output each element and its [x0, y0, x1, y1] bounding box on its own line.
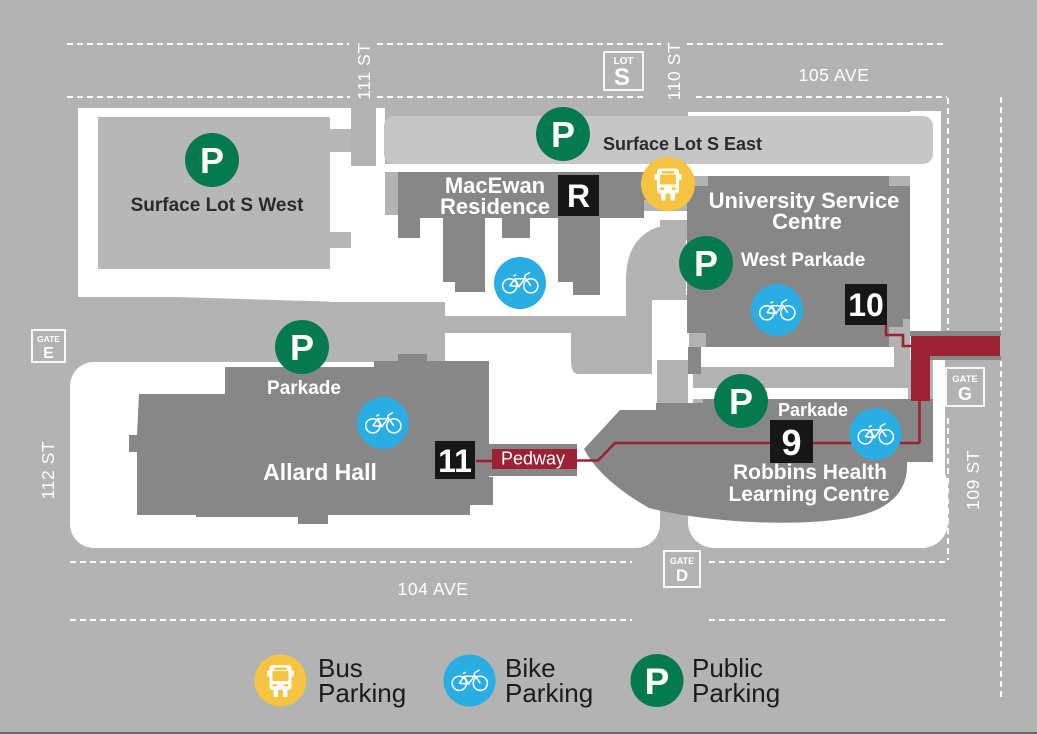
- svg-text:112 ST: 112 ST: [38, 441, 58, 500]
- svg-text:GATE: GATE: [37, 334, 60, 344]
- svg-text:Residence: Residence: [440, 194, 550, 219]
- svg-text:E: E: [43, 345, 54, 362]
- svg-text:111 ST: 111 ST: [354, 42, 374, 99]
- svg-text:Learning Centre: Learning Centre: [728, 483, 889, 506]
- svg-text:P: P: [551, 114, 575, 155]
- svg-text:West Parkade: West Parkade: [741, 250, 865, 271]
- svg-text:Parkade: Parkade: [267, 378, 341, 399]
- svg-text:Parking: Parking: [505, 678, 593, 708]
- svg-text:104 AVE: 104 AVE: [397, 579, 468, 599]
- svg-text:P: P: [645, 661, 670, 702]
- svg-text:110 ST: 110 ST: [664, 42, 684, 101]
- svg-text:Robbins Health: Robbins Health: [733, 461, 887, 484]
- svg-text:S: S: [614, 64, 630, 91]
- svg-text:P: P: [729, 381, 753, 422]
- svg-text:Parkade: Parkade: [778, 400, 848, 420]
- svg-text:Parking: Parking: [692, 678, 780, 708]
- svg-text:11: 11: [438, 443, 472, 479]
- svg-text:Surface Lot S West: Surface Lot S West: [131, 195, 304, 216]
- svg-text:10: 10: [848, 287, 884, 323]
- svg-text:Parking: Parking: [318, 678, 406, 708]
- svg-text:Pedway: Pedway: [501, 449, 565, 469]
- svg-text:Centre: Centre: [772, 209, 842, 234]
- svg-text:105 AVE: 105 AVE: [798, 65, 869, 85]
- svg-text:P: P: [290, 327, 314, 368]
- svg-text:9: 9: [781, 422, 801, 463]
- svg-text:GATE: GATE: [670, 556, 694, 566]
- svg-text:P: P: [200, 140, 224, 181]
- svg-text:D: D: [676, 566, 688, 585]
- svg-text:P: P: [694, 243, 718, 284]
- svg-text:Allard Hall: Allard Hall: [263, 459, 377, 485]
- svg-text:G: G: [958, 384, 972, 404]
- svg-text:109 ST: 109 ST: [963, 450, 983, 510]
- svg-text:R: R: [567, 178, 590, 214]
- svg-text:Surface Lot S East: Surface Lot S East: [603, 134, 762, 154]
